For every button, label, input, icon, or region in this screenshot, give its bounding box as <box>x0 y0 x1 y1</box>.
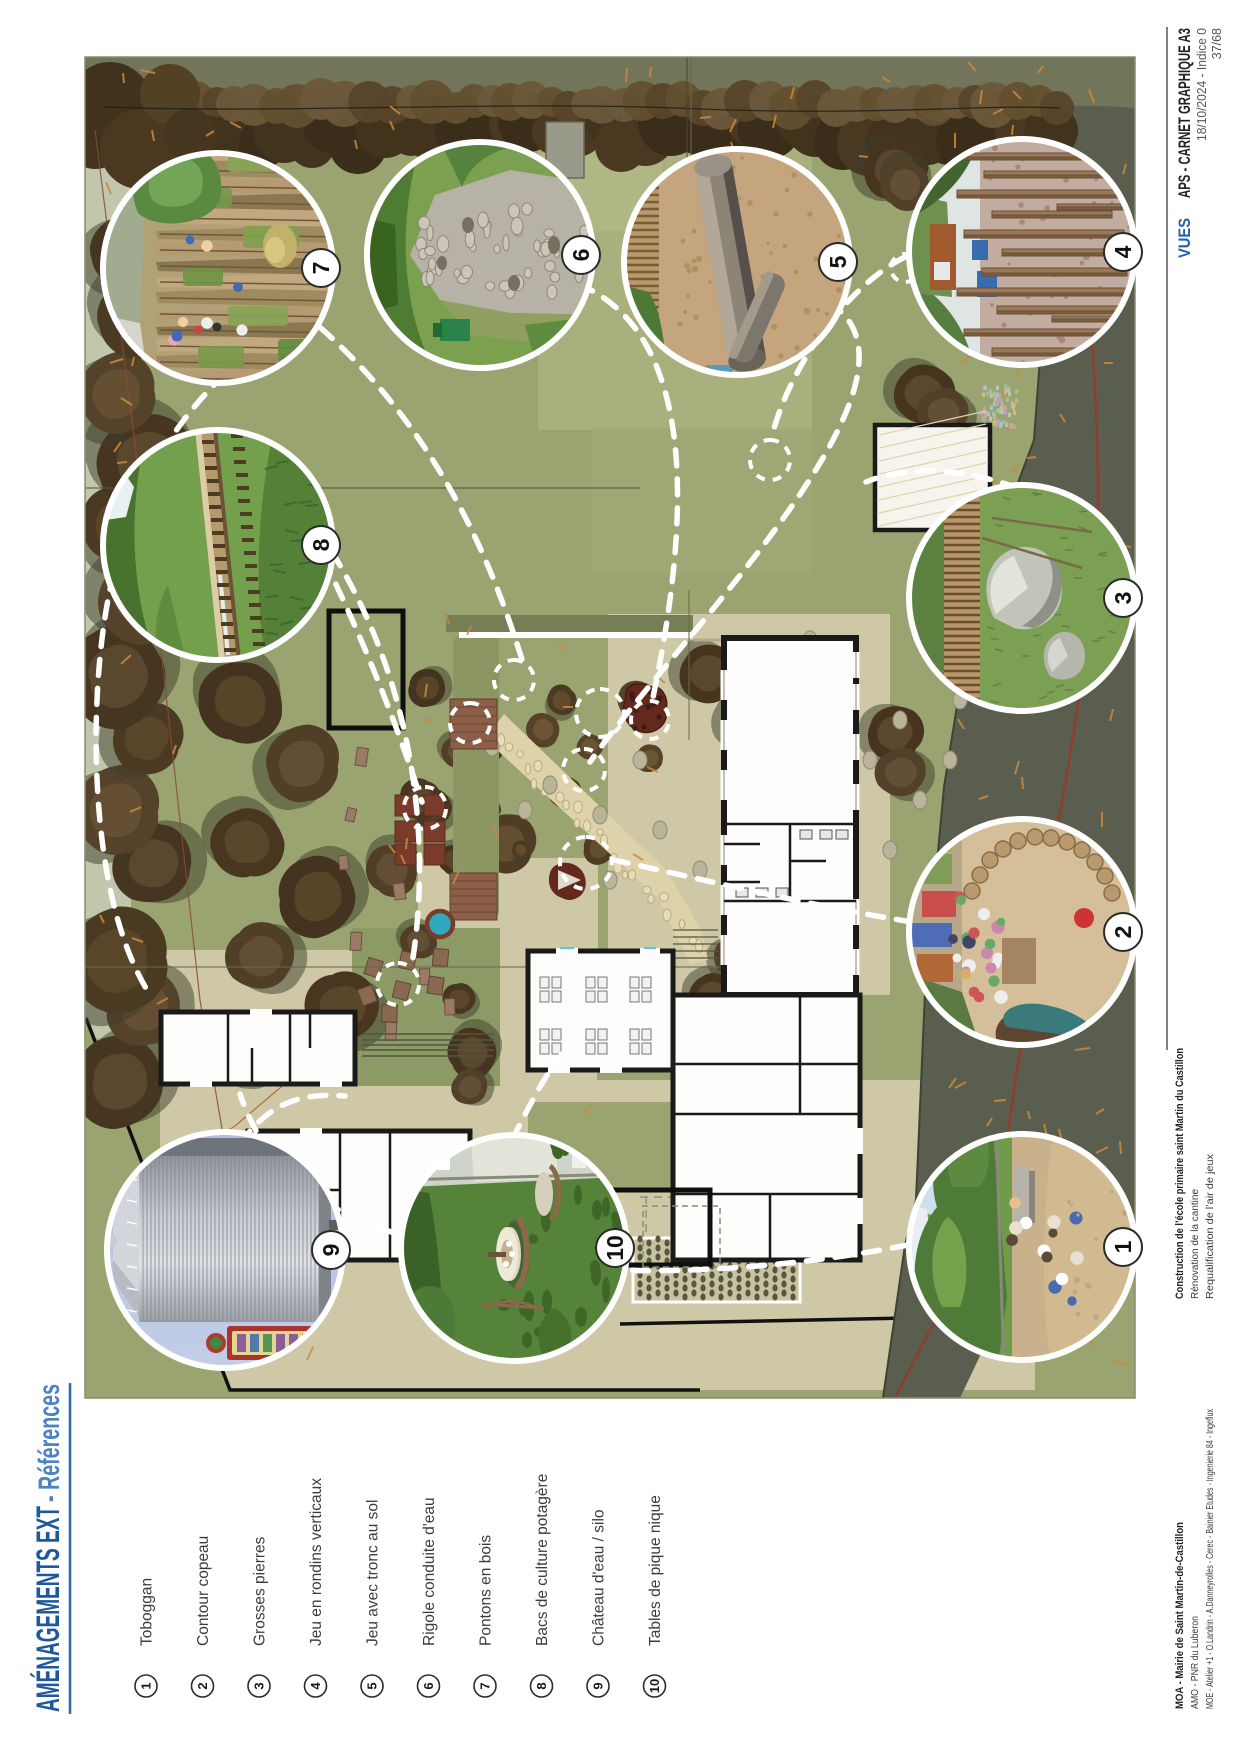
svg-text:6: 6 <box>568 249 594 262</box>
svg-text:Rénovation de la cantine: Rénovation de la cantine <box>1190 1189 1201 1299</box>
svg-text:4: 4 <box>308 1682 323 1690</box>
svg-text:9: 9 <box>591 1682 606 1689</box>
svg-text:MOA - Mairie de Saint Martin-d: MOA - Mairie de Saint Martin-de-Castillo… <box>1174 1522 1186 1709</box>
svg-text:5: 5 <box>365 1682 380 1689</box>
svg-text:4: 4 <box>1110 245 1136 258</box>
svg-text:APS - CARNET GRAPHIQUE A3: APS - CARNET GRAPHIQUE A3 <box>1175 28 1194 198</box>
svg-text:6: 6 <box>421 1682 436 1689</box>
svg-text:8: 8 <box>308 538 334 551</box>
svg-text:Toboggan: Toboggan <box>139 1578 156 1646</box>
svg-text:10: 10 <box>602 1235 628 1261</box>
svg-text:Jeu avec tronc au sol: Jeu avec tronc au sol <box>365 1500 382 1646</box>
svg-text:VUES: VUES <box>1175 218 1194 258</box>
svg-text:3: 3 <box>252 1682 267 1689</box>
svg-text:1: 1 <box>139 1682 154 1689</box>
svg-text:9: 9 <box>318 1244 344 1257</box>
svg-text:Jeu en rondins verticaux: Jeu en rondins verticaux <box>308 1478 325 1646</box>
svg-text:AMO - PNR du Luberon: AMO - PNR du Luberon <box>1190 1616 1201 1709</box>
svg-text:7: 7 <box>478 1682 493 1689</box>
svg-text:Pontons en bois: Pontons en bois <box>478 1535 495 1646</box>
svg-text:Bacs de culture potagère: Bacs de culture potagère <box>534 1474 551 1646</box>
svg-text:AMÉNAGEMENTS EXT: AMÉNAGEMENTS EXT <box>30 1506 66 1712</box>
svg-text:Construction de l’école primai: Construction de l’école primaire saint M… <box>1174 1048 1186 1299</box>
svg-text:8: 8 <box>534 1682 549 1689</box>
svg-text:Rigole conduite d'eau: Rigole conduite d'eau <box>421 1497 438 1646</box>
svg-text:Requalification de l’air de je: Requalification de l’air de jeux <box>1205 1154 1216 1299</box>
svg-text:2: 2 <box>195 1682 210 1689</box>
svg-text:Tables de pique nique: Tables de pique nique <box>647 1495 664 1646</box>
svg-text:3: 3 <box>1110 592 1136 605</box>
svg-text:18/10/2024 - Indice 0: 18/10/2024 - Indice 0 <box>1195 28 1209 141</box>
svg-text:Grosses pierres: Grosses pierres <box>252 1536 269 1646</box>
svg-text:1: 1 <box>1110 1240 1136 1253</box>
svg-text:7: 7 <box>308 262 334 275</box>
svg-text:37/68: 37/68 <box>1210 28 1224 59</box>
svg-text:Contour copeau: Contour copeau <box>195 1536 212 1646</box>
svg-text:- Références: - Références <box>33 1384 66 1502</box>
svg-text:5: 5 <box>825 255 851 268</box>
svg-text:10: 10 <box>647 1679 662 1693</box>
svg-text:Château d'eau / silo: Château d'eau / silo <box>591 1509 608 1646</box>
svg-text:MOE - Atelier +1 - O.Landrin -: MOE - Atelier +1 - O.Landrin - A.Danneyr… <box>1205 1409 1216 1709</box>
svg-text:2: 2 <box>1110 926 1136 939</box>
